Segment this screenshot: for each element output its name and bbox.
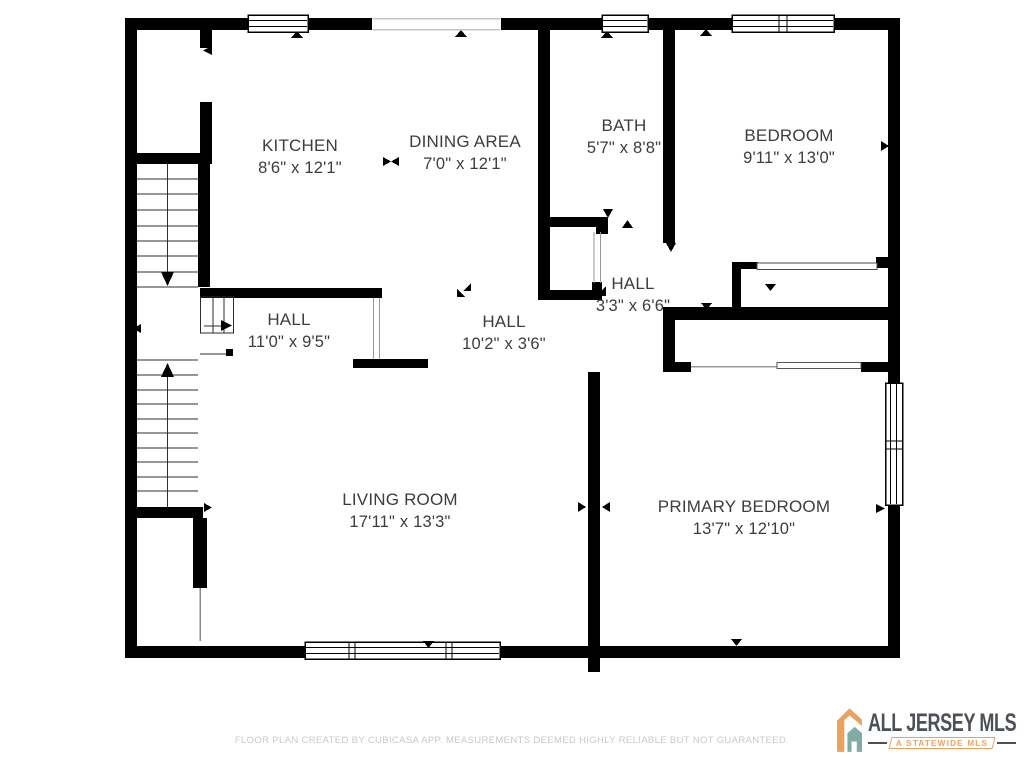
disclaimer-text: FLOOR PLAN CREATED BY CUBICASA APP. MEAS… [235,735,789,746]
room-dims: 8'6" x 12'1" [258,157,342,179]
room-name: HALL [248,309,331,331]
room-name: HALL [462,311,546,333]
room-label-bedroom: BEDROOM 9'11" x 13'0" [743,125,835,169]
staircase [137,164,234,507]
all-jersey-mls-logo: ALL JERSEY MLS A STATEWIDE MLS [836,706,1018,752]
floor-plan-page: KITCHEN 8'6" x 12'1" DINING AREA 7'0" x … [0,0,1024,768]
room-dims: 7'0" x 12'1" [409,153,521,175]
room-dims: 5'7" x 8'8" [587,137,661,159]
room-label-bath: BATH 5'7" x 8'8" [587,115,661,159]
room-name: DINING AREA [409,131,521,153]
logo-tagline-row: A STATEWIDE MLS [868,737,1016,749]
room-label-kitchen: KITCHEN 8'6" x 12'1" [258,135,342,179]
room-name: HALL [596,273,670,295]
room-name: BEDROOM [743,125,835,147]
logo-tagline: A STATEWIDE MLS [896,739,988,748]
logo-title: ALL JERSEY MLS [868,710,976,736]
room-dims: 10'2" x 3'6" [462,333,546,355]
room-name: LIVING ROOM [342,489,458,511]
tagline-rule-left [868,742,887,744]
room-label-hall-mid: HALL 10'2" x 3'6" [462,311,546,355]
logo-tagline-badge: A STATEWIDE MLS [888,737,995,749]
room-dims: 11'0" x 9'5" [248,331,331,353]
room-label-hall-left: HALL 11'0" x 9'5" [248,309,331,353]
windows [248,15,903,659]
room-name: PRIMARY BEDROOM [658,496,830,518]
room-label-primary-bedroom: PRIMARY BEDROOM 13'7" x 12'10" [658,496,830,540]
tagline-rule-right [997,742,1016,744]
room-dims: 3'3" x 6'6" [596,295,670,317]
floor-plan-drawing [0,0,1024,768]
room-name: KITCHEN [258,135,342,157]
house-logo-icon [836,706,863,752]
room-dims: 9'11" x 13'0" [743,147,835,169]
room-label-hall-small: HALL 3'3" x 6'6" [596,273,670,317]
room-dims: 13'7" x 12'10" [658,518,830,540]
room-name: BATH [587,115,661,137]
room-dims: 17'11" x 13'3" [342,511,458,533]
room-label-living-room: LIVING ROOM 17'11" x 13'3" [342,489,458,533]
room-label-dining-area: DINING AREA 7'0" x 12'1" [409,131,521,175]
logo-text-block: ALL JERSEY MLS A STATEWIDE MLS [868,710,1018,749]
